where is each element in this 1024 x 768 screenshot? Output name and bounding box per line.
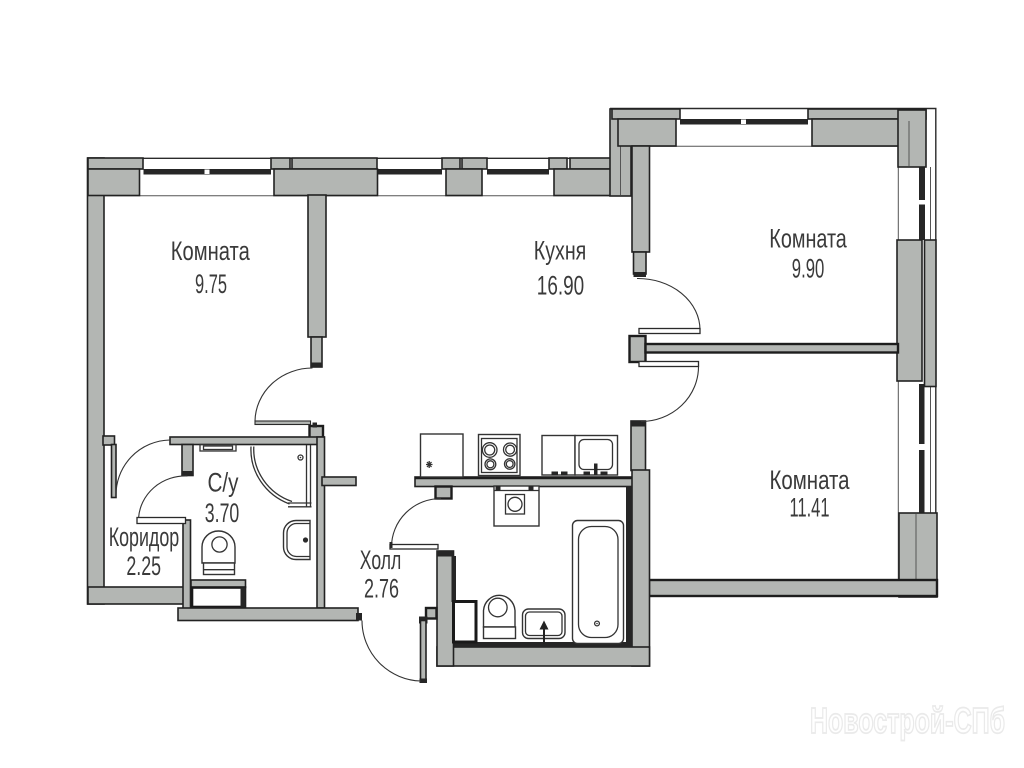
svg-text:Комната: Комната	[171, 236, 251, 266]
svg-text:9.75: 9.75	[195, 269, 227, 299]
svg-text:Комната: Комната	[770, 465, 851, 495]
svg-text:Новострой-СПб: Новострой-СПб	[810, 700, 1005, 741]
svg-text:Кухня: Кухня	[534, 236, 587, 266]
svg-text:2.76: 2.76	[364, 574, 399, 604]
svg-text:Холл: Холл	[360, 545, 402, 575]
svg-text:С/у: С/у	[208, 468, 239, 498]
svg-text:3.70: 3.70	[205, 498, 240, 528]
svg-text:16.90: 16.90	[537, 270, 584, 300]
svg-text:2.25: 2.25	[126, 551, 161, 581]
svg-text:Коридор: Коридор	[109, 522, 180, 552]
svg-text:9.90: 9.90	[792, 254, 825, 284]
svg-text:11.41: 11.41	[790, 493, 830, 523]
svg-text:Комната: Комната	[769, 223, 847, 253]
